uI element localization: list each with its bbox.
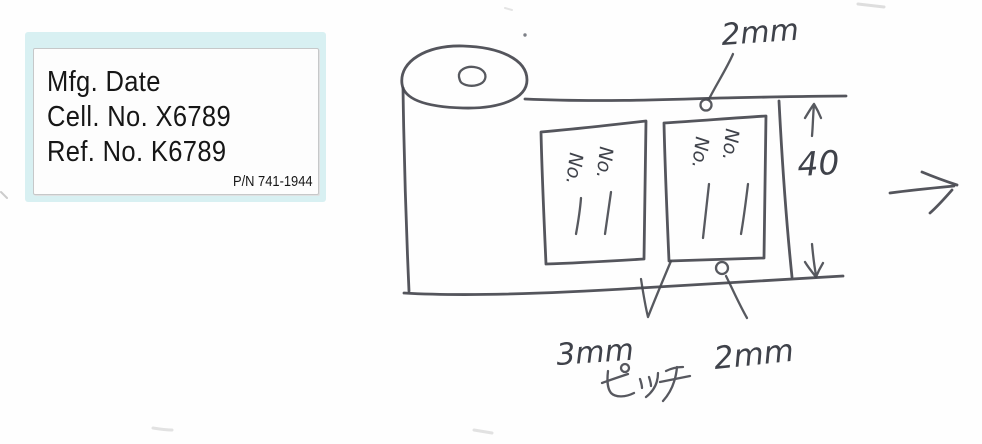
- tape-label-2-no-text-1: No.: [687, 135, 713, 169]
- tape-top-edge: [525, 96, 846, 101]
- tape-label-2-blank-line-2: [741, 184, 748, 234]
- tape-label-2-blank-line-1: [703, 184, 709, 238]
- feed-arrow-shaft: [890, 186, 954, 193]
- width-arrow-up: [805, 104, 821, 136]
- kana-chi-stroke-1: [666, 367, 683, 371]
- tape-label-2-outline: [664, 116, 766, 261]
- top-gap-dimension-label: 2mm: [720, 13, 800, 53]
- tape-bottom-edge: [404, 276, 843, 295]
- tape-label-1-no-text-2: No.: [592, 145, 617, 179]
- smudge-left-edge: [1, 192, 7, 198]
- pen-dot-artifact: [523, 33, 526, 36]
- hand-drawn-sketch: No. No. No. No. 2mm 40 3mm: [0, 0, 982, 444]
- roll-core-hole: [459, 67, 486, 86]
- scanned-spec-page: Mfg. Date Cell. No. X6789 Ref. No. K6789…: [0, 0, 982, 444]
- smudge-top-center: [505, 8, 512, 10]
- smudge-bottom-2: [474, 430, 492, 433]
- tape-label-2: No. No.: [664, 116, 766, 261]
- tape-label-2-no-text-2: No.: [718, 127, 743, 161]
- tape-label-1-no-text-1: No.: [561, 151, 587, 185]
- top-gap-marker-circle: [701, 100, 712, 111]
- feed-direction-arrow: [890, 172, 957, 213]
- pitch-callout: 3mm ピッチ: [555, 261, 690, 404]
- label-roll: [402, 46, 527, 291]
- tape-label-1: No. No.: [541, 121, 646, 264]
- width-arrow-down: [805, 244, 823, 277]
- bottom-gap-dimension-label: 2mm: [712, 333, 795, 377]
- roll-outer-ellipse: [402, 46, 527, 108]
- tape-band: [404, 96, 846, 295]
- top-gap-leader-line: [709, 54, 733, 99]
- tape-right-edge: [779, 101, 792, 277]
- tape-width-dimension: 40: [796, 104, 840, 277]
- bottom-gap-marker-circle: [716, 262, 728, 274]
- feed-arrow-head: [922, 172, 957, 213]
- tape-label-1-blank-line-2: [605, 192, 611, 234]
- roll-left-edge: [403, 88, 409, 291]
- tape-label-1-blank-line-1: [576, 198, 581, 234]
- tape-label-1-outline: [541, 121, 646, 264]
- tape-width-dimension-label: 40: [796, 143, 840, 184]
- pitch-dimension-label: 3mm: [555, 333, 635, 373]
- smudge-top-right: [858, 4, 884, 7]
- smudge-bottom-1: [153, 428, 172, 430]
